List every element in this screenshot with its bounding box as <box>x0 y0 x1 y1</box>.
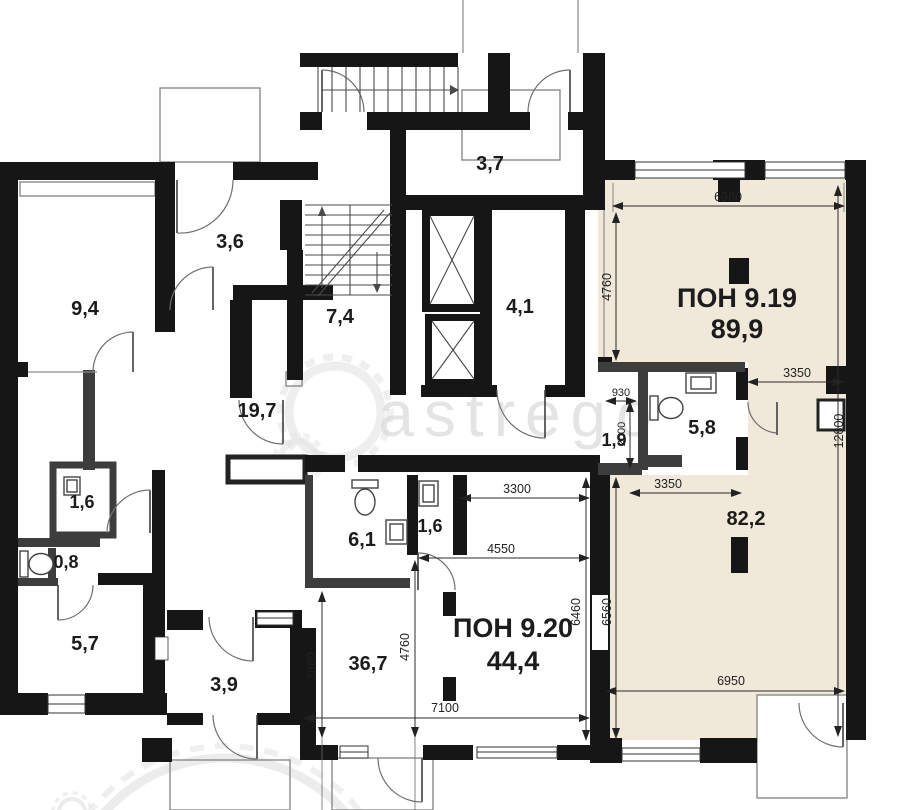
room-label-9-4: 9,4 <box>71 298 100 320</box>
window <box>477 747 557 758</box>
dim-6950: 6950 <box>717 674 745 688</box>
door <box>528 70 570 112</box>
unit-area-9-20: 44,4 <box>487 646 540 676</box>
column <box>729 258 749 284</box>
dim-6980: 6980 <box>714 190 742 204</box>
door <box>58 585 93 620</box>
room-label-19-7: 19,7 <box>238 400 277 422</box>
lower-flight <box>305 205 392 296</box>
dim-7100: 7100 <box>431 701 459 715</box>
column <box>443 677 456 701</box>
sink-icon <box>386 520 407 544</box>
highlight-areas <box>598 172 862 740</box>
door <box>213 715 257 759</box>
door <box>170 267 213 310</box>
window <box>622 748 700 761</box>
room-label-36-7: 36,7 <box>349 653 388 675</box>
toilet-icon <box>650 396 683 420</box>
door <box>322 70 364 112</box>
wall-niche <box>155 637 168 660</box>
dim-6560: 6560 <box>600 598 614 626</box>
dim-3300: 3300 <box>503 482 531 496</box>
duct-shaft <box>228 457 305 482</box>
floor-plan-page: astrego <box>0 0 900 810</box>
entry-vestibule-top-left <box>160 88 260 162</box>
door <box>209 617 253 661</box>
dim-4760-left: 4760 <box>398 633 412 661</box>
window <box>340 746 368 758</box>
room-label-0-8: 0,8 <box>53 552 78 572</box>
floor-plan: astrego <box>0 0 900 810</box>
watermark-tiny-gear-icon <box>59 799 85 810</box>
dim-3350-upper: 3350 <box>783 366 811 380</box>
room-label-82-2: 82,2 <box>727 508 766 530</box>
door <box>93 332 133 372</box>
dim-4550: 4550 <box>487 542 515 556</box>
dim-4760-right: 4760 <box>600 273 614 301</box>
room-label-3-6: 3,6 <box>216 231 244 253</box>
room-label-5-7: 5,7 <box>71 633 99 655</box>
unit-name-9-19: ПОН 9.19 <box>677 283 797 313</box>
sink-icon <box>686 373 716 393</box>
unit-name-9-20: ПОН 9.20 <box>453 613 573 643</box>
dim-3860: 3860 <box>305 652 319 680</box>
window <box>765 162 845 178</box>
room-label-1-6-a: 1,6 <box>69 492 94 512</box>
dim-12800: 12800 <box>832 414 846 449</box>
sink-icon <box>419 481 438 506</box>
unit-area-9-19: 89,9 <box>711 314 764 344</box>
room-label-5-8: 5,8 <box>688 417 716 439</box>
door <box>418 553 455 590</box>
toilet-icon <box>352 480 378 515</box>
window <box>48 695 85 713</box>
elevator-icon <box>425 314 481 386</box>
room-label-1-9: 1,9 <box>601 430 626 450</box>
room-label-1-6-b: 1,6 <box>417 516 442 536</box>
door <box>177 180 233 233</box>
elevator-icon <box>422 208 482 312</box>
room-label-3-9: 3,9 <box>210 674 238 696</box>
room-label-7-4: 7,4 <box>326 306 355 328</box>
wall-recess <box>20 182 155 196</box>
window <box>635 162 745 178</box>
room-label-4-1: 4,1 <box>506 296 534 318</box>
toilet-icon <box>20 551 53 577</box>
room-label-3-7: 3,7 <box>476 153 504 175</box>
dim-930: 930 <box>612 387 630 399</box>
column <box>731 537 748 573</box>
room-label-6-1: 6,1 <box>348 529 376 551</box>
window <box>257 612 293 625</box>
dim-3350-lower: 3350 <box>654 477 682 491</box>
